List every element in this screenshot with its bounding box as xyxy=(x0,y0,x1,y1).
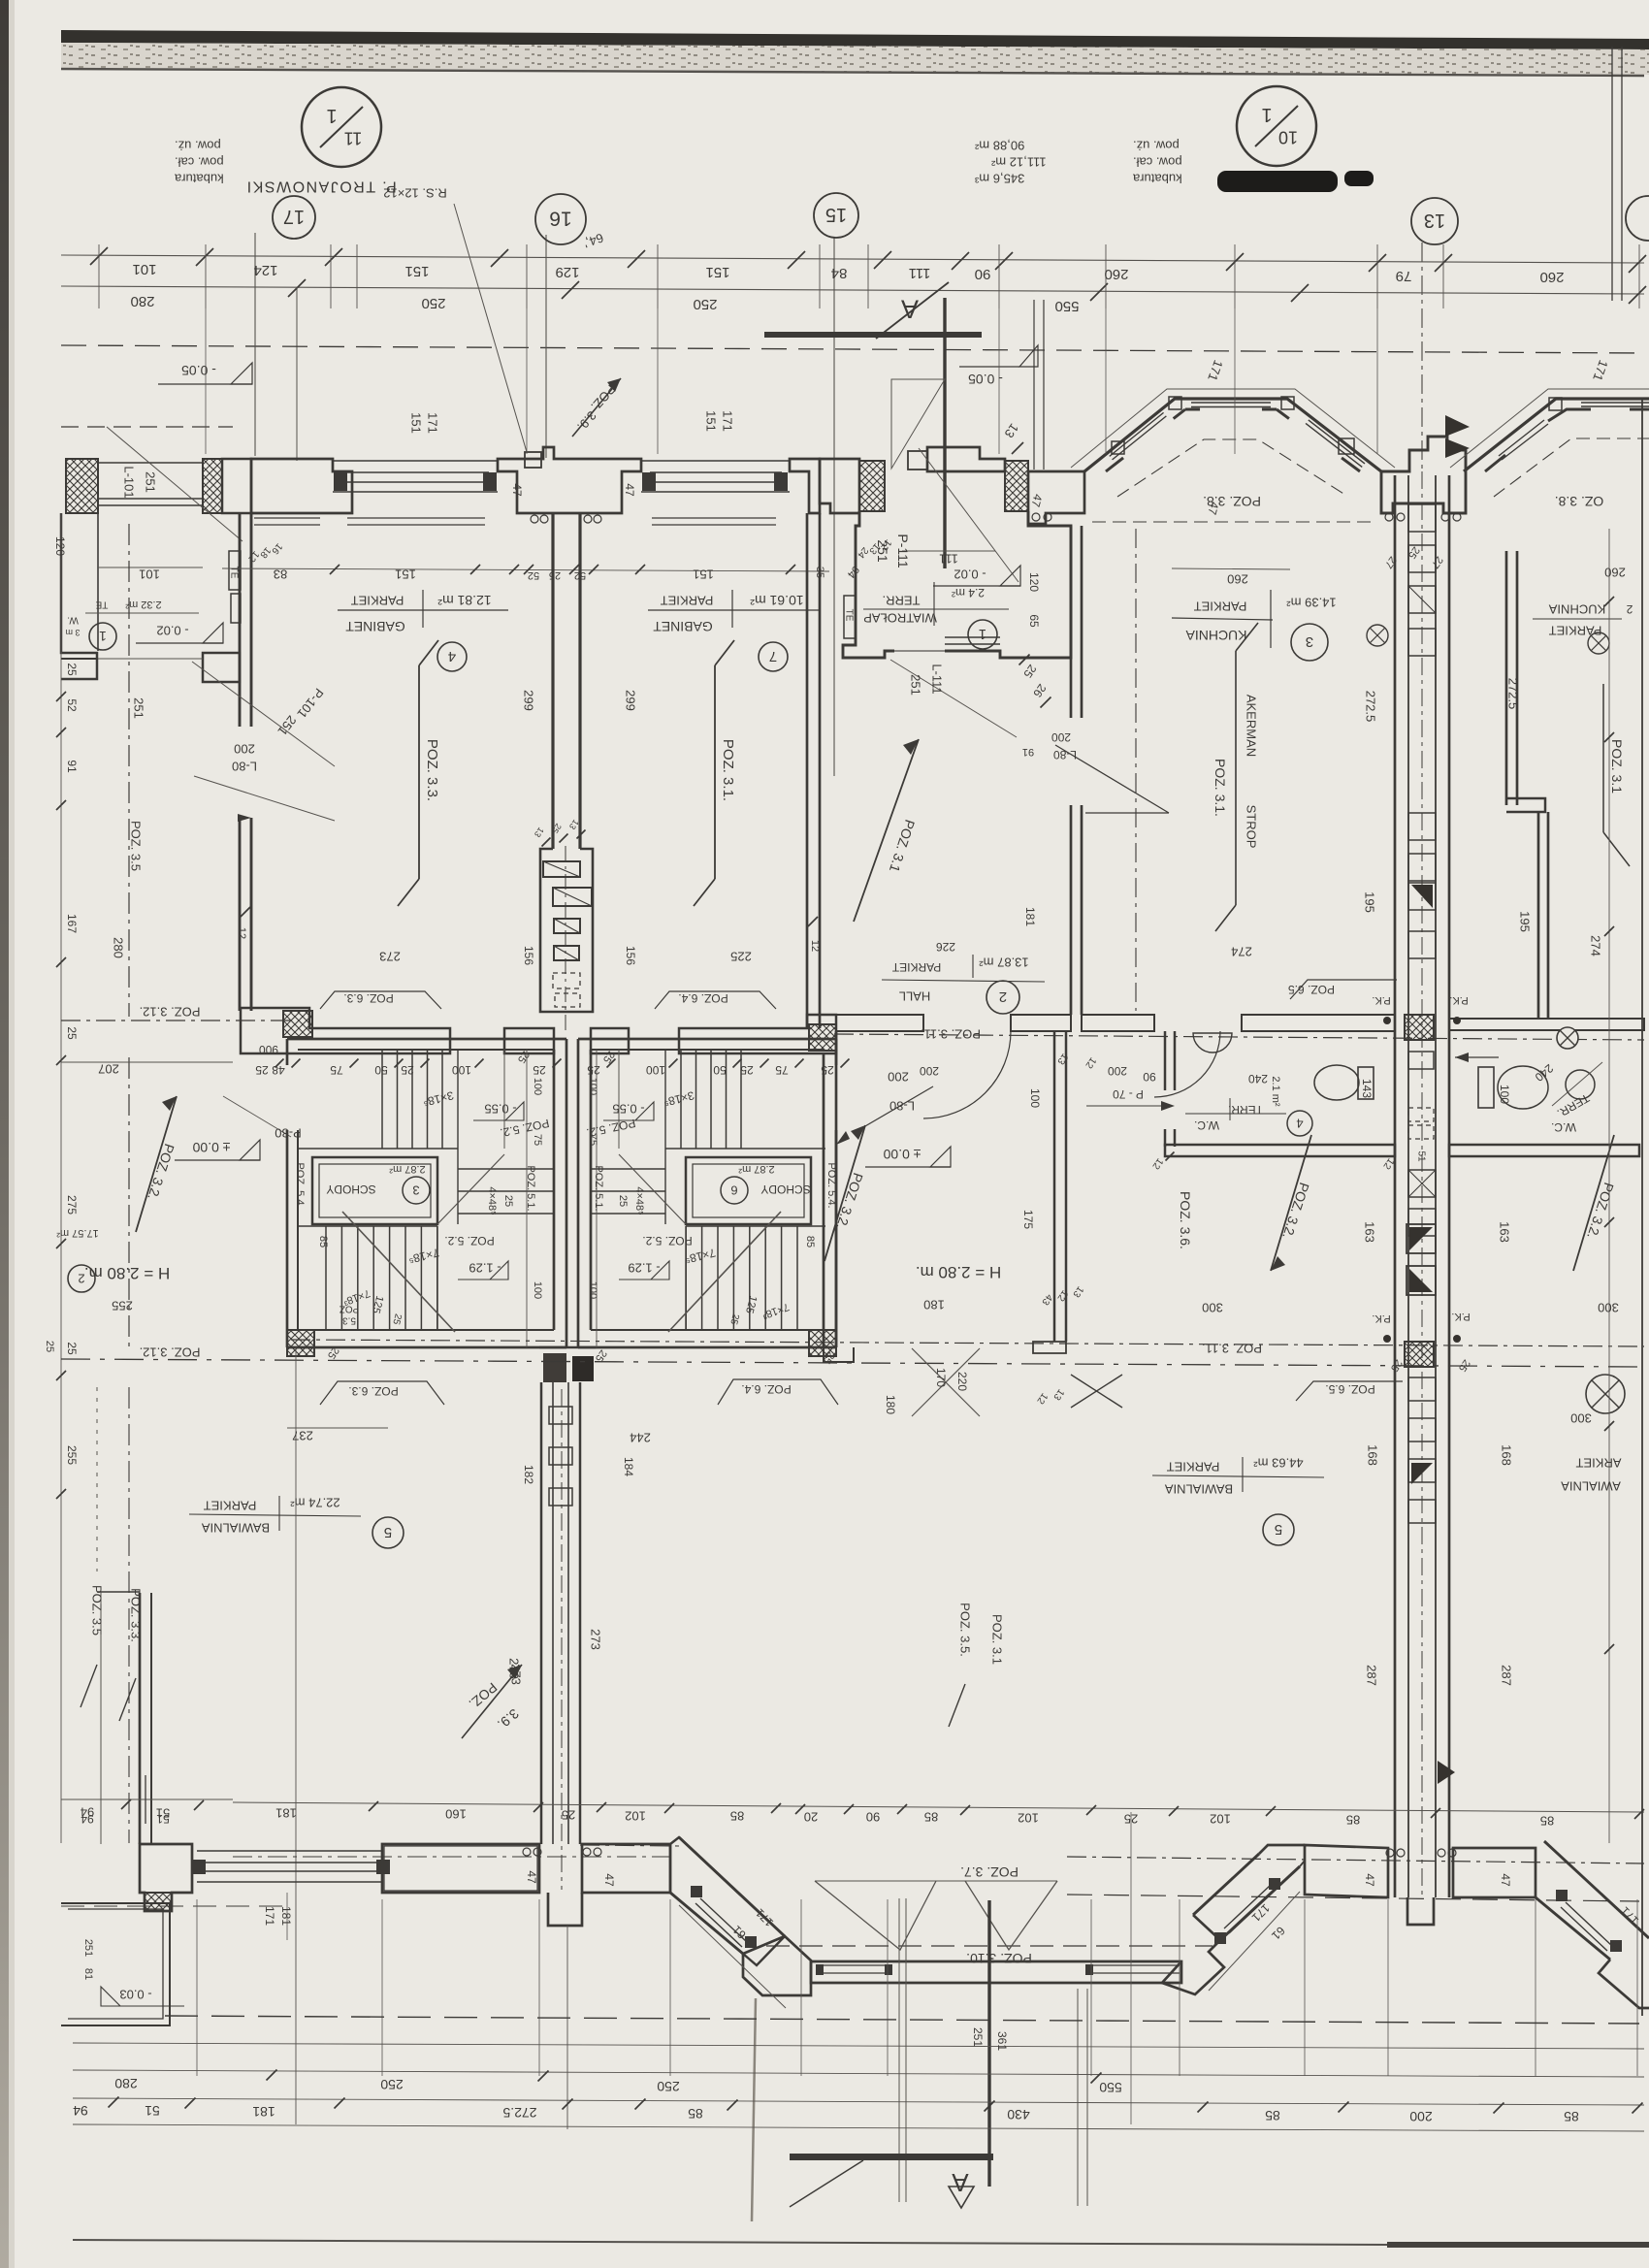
svg-text:25: 25 xyxy=(533,1063,546,1077)
svg-text:A: A xyxy=(901,295,919,324)
svg-text:2.87 m²: 2.87 m² xyxy=(389,1163,426,1175)
svg-text:kubatura: kubatura xyxy=(1132,171,1181,185)
svg-text:GABINET: GABINET xyxy=(345,619,405,634)
svg-text:85: 85 xyxy=(317,1236,329,1247)
svg-text:- 0.55: - 0.55 xyxy=(484,1101,516,1116)
svg-text:75: 75 xyxy=(775,1063,789,1077)
svg-text:5: 5 xyxy=(384,1524,392,1540)
svg-text:85: 85 xyxy=(924,1809,938,1824)
svg-text:124: 124 xyxy=(253,262,277,278)
svg-text:POZ. 5.1.: POZ. 5.1. xyxy=(525,1165,536,1211)
svg-text:90: 90 xyxy=(975,266,991,282)
svg-text:1: 1 xyxy=(979,626,986,642)
svg-text:20: 20 xyxy=(804,1809,818,1824)
svg-text:44.63 m²: 44.63 m² xyxy=(1253,1455,1304,1470)
svg-text:POZ. 3.3.: POZ. 3.3. xyxy=(128,1588,143,1642)
svg-text:255: 255 xyxy=(65,1445,79,1465)
svg-text:91: 91 xyxy=(65,760,79,773)
svg-text:200: 200 xyxy=(234,741,255,756)
svg-text:260: 260 xyxy=(1604,565,1626,579)
svg-text:83: 83 xyxy=(274,567,287,581)
svg-text:AKERMAN: AKERMAN xyxy=(1244,695,1258,757)
svg-text:POZ. 3.11.: POZ. 3.11. xyxy=(921,1026,981,1041)
svg-text:POZ. 6.4.: POZ. 6.4. xyxy=(741,1382,791,1396)
svg-text:17: 17 xyxy=(283,206,305,227)
svg-text:200: 200 xyxy=(888,1069,909,1084)
svg-text:POZ. 3.1: POZ. 3.1 xyxy=(1609,739,1625,794)
svg-text:200: 200 xyxy=(1409,2109,1433,2124)
svg-text:160: 160 xyxy=(445,1806,467,1821)
svg-text:273: 273 xyxy=(508,1664,523,1685)
svg-text:pow. uż.: pow. uż. xyxy=(1133,138,1180,152)
svg-text:POZ. 3.10.: POZ. 3.10. xyxy=(966,1951,1032,1966)
svg-text:25: 25 xyxy=(617,1195,629,1207)
svg-text:47: 47 xyxy=(525,1870,538,1884)
svg-text:TE: TE xyxy=(95,599,108,610)
svg-text:TERR.: TERR. xyxy=(1228,1103,1263,1117)
svg-text:POZ. 3.3.: POZ. 3.3. xyxy=(424,739,440,801)
svg-text:POZ. 3.5: POZ. 3.5 xyxy=(128,821,143,871)
svg-text:12: 12 xyxy=(236,927,247,939)
svg-text:PARKIET: PARKIET xyxy=(1167,1459,1220,1474)
svg-text:94: 94 xyxy=(73,2103,88,2119)
svg-text:POZ. 3.5.: POZ. 3.5. xyxy=(957,1603,972,1657)
svg-text:L-80: L-80 xyxy=(889,1098,915,1113)
svg-text:POZ. 3.8.: POZ. 3.8. xyxy=(1203,494,1261,509)
svg-text:14.39 m²: 14.39 m² xyxy=(1286,595,1337,609)
svg-text:251: 251 xyxy=(908,674,922,696)
svg-text:181: 181 xyxy=(279,1906,293,1926)
svg-text:4×48⁵: 4×48⁵ xyxy=(486,1186,498,1215)
svg-text:P.K.: P.K. xyxy=(1372,1312,1390,1324)
svg-text:P.K.: P.K. xyxy=(1449,994,1468,1006)
svg-text:273: 273 xyxy=(379,949,401,963)
svg-text:WIATROŁAP: WIATROŁAP xyxy=(863,610,937,625)
svg-text:16: 16 xyxy=(549,208,571,230)
svg-text:AWIALNIA: AWIALNIA xyxy=(1561,1478,1621,1493)
svg-text:25: 25 xyxy=(502,1195,514,1207)
svg-text:2: 2 xyxy=(1626,602,1633,616)
svg-text:168: 168 xyxy=(1499,1444,1513,1466)
svg-text:300: 300 xyxy=(1570,1410,1592,1425)
svg-text:POZ. 5.4.: POZ. 5.4. xyxy=(825,1162,837,1208)
svg-text:47: 47 xyxy=(510,483,524,497)
svg-text:POZ. 5.1.: POZ. 5.1. xyxy=(593,1165,604,1211)
svg-text:156: 156 xyxy=(522,946,535,965)
svg-text:TERR.: TERR. xyxy=(883,593,921,607)
svg-text:75: 75 xyxy=(330,1063,343,1077)
svg-text:143: 143 xyxy=(1360,1079,1374,1098)
svg-text:2.4 m²: 2.4 m² xyxy=(952,586,985,599)
svg-text:POZ. 3.7.: POZ. 3.7. xyxy=(960,1864,1018,1880)
svg-text:90,88 m²: 90,88 m² xyxy=(974,138,1024,152)
svg-text:101: 101 xyxy=(139,567,160,581)
svg-text:287: 287 xyxy=(1364,1665,1378,1686)
svg-text:POZ. 5.2.: POZ. 5.2. xyxy=(444,1234,494,1247)
svg-text:POZ. 3.1.: POZ. 3.1. xyxy=(1212,759,1228,817)
svg-text:GABINET: GABINET xyxy=(653,619,713,634)
svg-text:51: 51 xyxy=(145,2103,160,2119)
svg-text:151: 151 xyxy=(703,410,718,432)
svg-text:PARKIET: PARKIET xyxy=(204,1498,257,1512)
svg-text:299: 299 xyxy=(623,690,637,711)
svg-text:PARKIET: PARKIET xyxy=(1194,599,1247,613)
svg-text:200: 200 xyxy=(1108,1064,1127,1078)
svg-text:75: 75 xyxy=(532,1134,543,1146)
svg-text:182: 182 xyxy=(522,1465,535,1484)
svg-text:275: 275 xyxy=(65,1195,79,1215)
svg-text:P - 70: P - 70 xyxy=(1113,1087,1144,1101)
svg-text:PARKIET: PARKIET xyxy=(661,593,714,607)
svg-text:200: 200 xyxy=(1051,730,1071,744)
svg-text:52: 52 xyxy=(528,569,539,581)
svg-text:181: 181 xyxy=(252,2104,275,2120)
svg-text:100: 100 xyxy=(532,1281,543,1299)
svg-text:R.S. 12×12: R.S. 12×12 xyxy=(383,185,446,200)
svg-text:4×48⁵: 4×48⁵ xyxy=(633,1186,645,1215)
svg-text:100: 100 xyxy=(1028,1088,1042,1108)
svg-text:85: 85 xyxy=(1346,1812,1360,1827)
svg-text:151: 151 xyxy=(404,263,429,279)
svg-text:274: 274 xyxy=(1231,944,1252,958)
svg-text:91: 91 xyxy=(1022,746,1034,758)
svg-text:- 0.55: - 0.55 xyxy=(612,1101,644,1116)
svg-text:85: 85 xyxy=(804,1236,816,1247)
svg-text:OZ. 3.8.: OZ. 3.8. xyxy=(1555,494,1604,509)
svg-text:251: 251 xyxy=(143,471,157,493)
svg-text:52: 52 xyxy=(574,569,586,581)
svg-text:300: 300 xyxy=(1598,1300,1619,1314)
svg-text:50: 50 xyxy=(713,1063,727,1077)
svg-text:180: 180 xyxy=(923,1297,945,1312)
svg-text:85: 85 xyxy=(730,1808,744,1823)
svg-text:111,12 m²: 111,12 m² xyxy=(990,154,1046,169)
svg-text:TE: TE xyxy=(229,567,240,579)
svg-text:81: 81 xyxy=(82,1968,94,1980)
svg-text:12.81 m²: 12.81 m² xyxy=(437,593,492,608)
svg-text:P. TROJANOWSKI: P. TROJANOWSKI xyxy=(245,178,397,194)
svg-text:52: 52 xyxy=(65,698,79,712)
svg-text:± 0.00: ± 0.00 xyxy=(883,1147,921,1162)
svg-text:L-80: L-80 xyxy=(1053,748,1077,761)
svg-text:5.3: 5.3 xyxy=(342,1315,356,1326)
svg-text:65: 65 xyxy=(1027,614,1041,628)
svg-text:3: 3 xyxy=(412,1183,419,1197)
svg-text:900: 900 xyxy=(259,1043,278,1056)
svg-text:151: 151 xyxy=(408,412,423,434)
svg-text:102: 102 xyxy=(625,1808,646,1823)
svg-text:250: 250 xyxy=(380,2077,404,2092)
svg-text:- 1.29: - 1.29 xyxy=(628,1260,660,1275)
svg-text:85: 85 xyxy=(1265,2108,1280,2123)
svg-text:- 0.05: - 0.05 xyxy=(181,363,216,378)
svg-text:1: 1 xyxy=(326,105,337,126)
svg-text:163: 163 xyxy=(1497,1221,1511,1243)
svg-text:L-111: L-111 xyxy=(929,664,944,694)
svg-text:90: 90 xyxy=(866,1809,880,1824)
svg-text:299: 299 xyxy=(521,690,535,711)
svg-text:51: 51 xyxy=(1416,1150,1427,1162)
svg-text:175: 175 xyxy=(1021,1210,1035,1229)
svg-text:251: 251 xyxy=(971,2027,985,2047)
svg-text:10: 10 xyxy=(1278,128,1298,147)
svg-text:L-101: L-101 xyxy=(121,466,136,498)
svg-text:POZ. 3.1: POZ. 3.1 xyxy=(989,1614,1004,1665)
svg-text:POZ. 6.3.: POZ. 6.3. xyxy=(343,991,393,1005)
svg-text:25: 25 xyxy=(1124,1811,1138,1826)
svg-text:181: 181 xyxy=(275,1805,297,1820)
svg-text:- 0.05: - 0.05 xyxy=(968,372,1003,387)
svg-text:2: 2 xyxy=(999,988,1007,1005)
svg-text:POZ. 3.12.: POZ. 3.12. xyxy=(140,1004,201,1019)
svg-text:272.5: 272.5 xyxy=(1505,678,1520,710)
svg-text:250: 250 xyxy=(657,2079,680,2094)
svg-text:260: 260 xyxy=(1227,571,1248,586)
svg-text:17.57 m²: 17.57 m² xyxy=(56,1227,99,1239)
svg-text:79: 79 xyxy=(1396,268,1412,284)
svg-text:A: A xyxy=(952,2168,969,2197)
svg-text:345,6 m³: 345,6 m³ xyxy=(974,171,1024,185)
svg-text:POZ. 3.11.: POZ. 3.11. xyxy=(1202,1341,1262,1355)
svg-text:POZ. 3.1.: POZ. 3.1. xyxy=(720,739,736,801)
svg-text:3 m: 3 m xyxy=(65,628,80,637)
svg-text:207: 207 xyxy=(98,1061,119,1076)
svg-text:237: 237 xyxy=(292,1428,313,1442)
svg-text:251: 251 xyxy=(82,1939,94,1957)
svg-text:2.87 m²: 2.87 m² xyxy=(738,1163,775,1175)
svg-text:25: 25 xyxy=(255,1063,269,1077)
svg-text:102: 102 xyxy=(1210,1811,1231,1826)
svg-text:- 1.29: - 1.29 xyxy=(469,1260,501,1275)
svg-text:100: 100 xyxy=(646,1063,665,1077)
svg-text:P.K.: P.K. xyxy=(1372,994,1390,1006)
svg-text:ARKIET: ARKIET xyxy=(1575,1455,1621,1470)
svg-text:111: 111 xyxy=(939,551,958,566)
svg-text:129: 129 xyxy=(555,264,579,280)
svg-text:25: 25 xyxy=(821,1063,834,1077)
svg-text:P-80: P-80 xyxy=(275,1125,301,1140)
svg-text:- 0.02: - 0.02 xyxy=(156,623,188,637)
svg-text:195: 195 xyxy=(1362,891,1376,913)
svg-text:156: 156 xyxy=(624,946,637,965)
svg-text:101: 101 xyxy=(132,261,156,277)
svg-text:- 0.02: - 0.02 xyxy=(954,567,986,581)
svg-text:P.K.: P.K. xyxy=(1451,1311,1470,1322)
svg-text:168: 168 xyxy=(1365,1444,1379,1466)
svg-text:POZ. 6.5.: POZ. 6.5. xyxy=(1325,1382,1374,1396)
svg-text:H = 2.80 m.: H = 2.80 m. xyxy=(916,1263,1001,1281)
svg-text:85: 85 xyxy=(688,2106,703,2122)
svg-text:POZ. 5.2.: POZ. 5.2. xyxy=(642,1234,692,1247)
svg-text:151: 151 xyxy=(395,567,416,581)
svg-text:35: 35 xyxy=(814,567,825,578)
svg-text:94: 94 xyxy=(81,1812,94,1826)
svg-text:BAWIALNIA: BAWIALNIA xyxy=(202,1520,271,1535)
svg-text:P-111: P-111 xyxy=(895,534,911,567)
svg-text:272.5: 272.5 xyxy=(1363,691,1377,723)
svg-text:7: 7 xyxy=(769,648,777,664)
svg-text:280: 280 xyxy=(130,293,154,309)
svg-text:pow. cał.: pow. cał. xyxy=(175,154,224,169)
svg-text:12: 12 xyxy=(809,940,821,952)
svg-text:184: 184 xyxy=(622,1457,635,1476)
svg-text:HALL: HALL xyxy=(899,988,931,1003)
svg-text:W.: W. xyxy=(67,615,79,626)
svg-text:100: 100 xyxy=(587,1078,598,1095)
svg-text:6: 6 xyxy=(730,1183,737,1197)
svg-text:260: 260 xyxy=(1539,269,1564,285)
svg-text:25: 25 xyxy=(65,1026,79,1040)
svg-text:TE: TE xyxy=(844,609,855,622)
svg-text:L-80: L-80 xyxy=(232,759,257,773)
svg-text:25: 25 xyxy=(587,1063,600,1077)
svg-text:25: 25 xyxy=(740,1063,754,1077)
svg-text:220: 220 xyxy=(955,1372,969,1391)
svg-text:25: 25 xyxy=(44,1341,55,1352)
svg-text:47: 47 xyxy=(623,483,636,497)
svg-text:POZ. 6.4.: POZ. 6.4. xyxy=(678,991,727,1005)
svg-text:260: 260 xyxy=(1104,266,1128,282)
svg-text:287: 287 xyxy=(1499,1665,1513,1686)
svg-text:120: 120 xyxy=(1027,572,1041,592)
svg-text:250: 250 xyxy=(693,296,717,312)
svg-text:244: 244 xyxy=(630,1430,651,1444)
svg-text:100: 100 xyxy=(532,1078,543,1095)
svg-text:200: 200 xyxy=(920,1064,939,1078)
svg-text:47: 47 xyxy=(1363,1873,1376,1887)
svg-text:SCHODY: SCHODY xyxy=(760,1183,810,1196)
svg-text:KUCHNIA: KUCHNIA xyxy=(1185,628,1247,643)
svg-text:POZ. 5.4.: POZ. 5.4. xyxy=(294,1162,306,1208)
svg-text:102: 102 xyxy=(1018,1810,1039,1825)
svg-text:22.74 m²: 22.74 m² xyxy=(290,1495,340,1509)
svg-text:550: 550 xyxy=(1054,298,1079,314)
svg-text:300: 300 xyxy=(1202,1300,1223,1314)
svg-text:± 0.00: ± 0.00 xyxy=(192,1140,230,1155)
svg-text:47: 47 xyxy=(602,1873,616,1887)
svg-text:POZ. 3.12.: POZ. 3.12. xyxy=(140,1345,201,1359)
svg-text:25: 25 xyxy=(549,569,561,581)
svg-text:280: 280 xyxy=(114,2076,138,2091)
svg-text:226: 226 xyxy=(936,940,955,954)
svg-text:PARKIET: PARKIET xyxy=(891,960,941,974)
svg-text:90: 90 xyxy=(1143,1070,1156,1084)
svg-text:240: 240 xyxy=(1248,1072,1268,1085)
svg-text:120: 120 xyxy=(53,536,67,556)
svg-text:361: 361 xyxy=(995,2031,1009,2051)
svg-text:167: 167 xyxy=(65,914,79,933)
svg-text:273: 273 xyxy=(588,1629,602,1650)
svg-text:11: 11 xyxy=(344,129,363,148)
svg-text:181: 181 xyxy=(1023,907,1037,926)
svg-text:100: 100 xyxy=(452,1063,471,1077)
svg-text:272.5: 272.5 xyxy=(502,2105,536,2121)
svg-text:1: 1 xyxy=(1261,104,1272,125)
svg-text:5: 5 xyxy=(1275,1521,1282,1538)
svg-text:47: 47 xyxy=(1499,1873,1512,1887)
svg-text:170: 170 xyxy=(934,1368,948,1387)
svg-text:1: 1 xyxy=(99,629,107,644)
svg-text:50: 50 xyxy=(374,1063,388,1077)
svg-text:pow. uż.: pow. uż. xyxy=(175,138,221,152)
svg-text:- 0.03: - 0.03 xyxy=(119,1987,151,2001)
svg-text:25: 25 xyxy=(65,663,79,676)
svg-text:W.C.: W.C. xyxy=(1194,1118,1219,1132)
svg-text:13: 13 xyxy=(1424,210,1445,231)
svg-text:100: 100 xyxy=(1498,1085,1511,1104)
svg-text:2: 2 xyxy=(78,1271,84,1285)
svg-text:51: 51 xyxy=(156,1812,170,1826)
svg-text:85: 85 xyxy=(1564,2109,1579,2124)
svg-text:180: 180 xyxy=(884,1395,897,1414)
svg-text:151: 151 xyxy=(693,567,714,581)
svg-text:171: 171 xyxy=(263,1906,276,1926)
svg-text:POZ. 6.3.: POZ. 6.3. xyxy=(348,1384,398,1398)
svg-text:25: 25 xyxy=(65,1342,79,1355)
svg-text:163: 163 xyxy=(1362,1221,1376,1243)
svg-text:pow. cał.: pow. cał. xyxy=(1133,154,1182,169)
svg-text:13.87 m²: 13.87 m² xyxy=(979,955,1029,969)
svg-text:25: 25 xyxy=(562,1807,575,1822)
svg-text:550: 550 xyxy=(1099,2080,1122,2095)
svg-text:85: 85 xyxy=(1540,1813,1554,1828)
svg-text:H = 2.80 m.: H = 2.80 m. xyxy=(84,1264,170,1282)
svg-text:POZ. 6.5: POZ. 6.5 xyxy=(1288,983,1335,996)
svg-text:48: 48 xyxy=(272,1063,285,1077)
svg-text:84: 84 xyxy=(831,265,848,281)
svg-text:BAWIALNIA: BAWIALNIA xyxy=(1165,1481,1234,1496)
svg-text:100: 100 xyxy=(587,1281,598,1299)
svg-text:274: 274 xyxy=(1588,935,1602,956)
svg-text:4: 4 xyxy=(1296,1116,1303,1130)
svg-text:250: 250 xyxy=(421,295,445,311)
svg-text:KUCHNIA: KUCHNIA xyxy=(1548,601,1605,616)
svg-text:225: 225 xyxy=(730,949,752,963)
svg-text:280: 280 xyxy=(111,937,125,958)
svg-text:75: 75 xyxy=(587,1134,598,1146)
svg-text:4: 4 xyxy=(448,648,456,664)
svg-text:SCHODY: SCHODY xyxy=(326,1183,375,1196)
svg-text:151: 151 xyxy=(705,264,729,280)
svg-text:POZ. 3.6.: POZ. 3.6. xyxy=(1178,1191,1193,1249)
svg-text:171: 171 xyxy=(425,412,439,434)
svg-text:kubatura: kubatura xyxy=(174,171,223,185)
svg-text:PARKIET: PARKIET xyxy=(1549,623,1602,637)
svg-text:195: 195 xyxy=(1517,911,1532,932)
svg-text:255: 255 xyxy=(112,1298,133,1312)
svg-text:W.C.: W.C. xyxy=(1551,1120,1576,1134)
svg-text:10.61 m²: 10.61 m² xyxy=(750,593,804,608)
svg-text:PARKIET: PARKIET xyxy=(351,593,404,607)
svg-text:POZ. 3.5: POZ. 3.5 xyxy=(89,1585,104,1636)
svg-text:15: 15 xyxy=(825,204,847,225)
svg-text:STROP: STROP xyxy=(1244,805,1258,849)
svg-text:430: 430 xyxy=(1007,2107,1030,2122)
svg-text:25: 25 xyxy=(401,1063,414,1077)
svg-text:3: 3 xyxy=(1306,633,1313,650)
svg-text:2.1 m²: 2.1 m² xyxy=(1270,1076,1281,1107)
svg-text:2.32 m²: 2.32 m² xyxy=(125,599,162,610)
svg-text:171: 171 xyxy=(720,410,734,432)
svg-text:251: 251 xyxy=(131,697,145,719)
svg-text:111: 111 xyxy=(909,265,931,281)
